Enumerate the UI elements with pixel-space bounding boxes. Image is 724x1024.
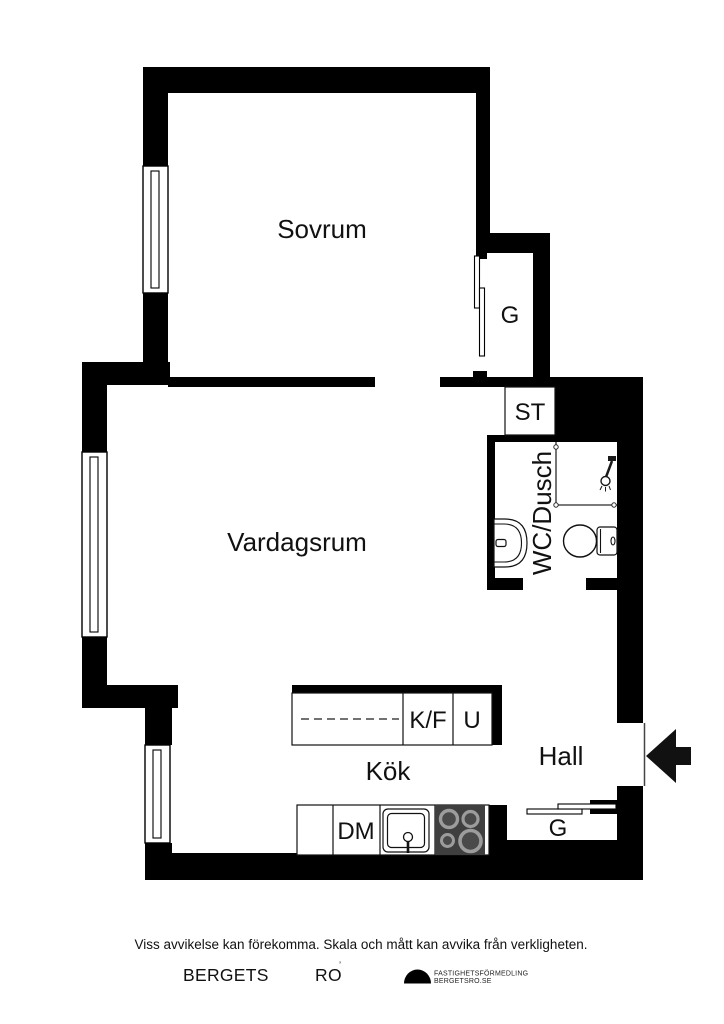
floor-plan-page: Sovrum Vardagsrum Kök Hall WC/Dusch G ST… bbox=[0, 0, 724, 1024]
kitchen-sink-basin bbox=[388, 814, 425, 848]
wall-sovrum-right bbox=[476, 67, 490, 233]
wall-wc-bottom-left bbox=[487, 578, 523, 590]
wall-sovrum-left-upper bbox=[143, 93, 168, 166]
agency-line-2: BERGETSRO.SE bbox=[434, 978, 492, 985]
brand-word-ro: RO bbox=[315, 965, 342, 985]
sliding-door-hall-closet-panel-2 bbox=[558, 804, 616, 809]
burner-bottom-right bbox=[460, 831, 481, 852]
label-diskmaskin: DM bbox=[337, 818, 374, 845]
wall-lowerleft-above-window bbox=[145, 708, 172, 745]
shower-bracket bbox=[608, 456, 616, 461]
toilet-bowl bbox=[564, 525, 597, 557]
wall-stub-right-of-stove bbox=[489, 805, 507, 855]
label-hall: Hall bbox=[539, 741, 584, 771]
wall-closet-right bbox=[533, 233, 550, 385]
agency-dome-logo-icon bbox=[404, 970, 431, 984]
kitchen-tap-icon bbox=[404, 833, 413, 842]
wall-step-bottom-left bbox=[82, 685, 178, 708]
wall-kitchen-counter-top bbox=[292, 685, 502, 693]
window-vardagsrum-glass bbox=[90, 457, 98, 632]
window-sovrum-glass bbox=[151, 171, 159, 288]
label-garderob-hall: G bbox=[549, 815, 568, 842]
label-sovrum: Sovrum bbox=[277, 214, 367, 244]
wall-sovrum-left-lower bbox=[143, 293, 168, 370]
shower-rail-dot-1 bbox=[554, 445, 558, 449]
sliding-door-closet-panel-1 bbox=[475, 256, 480, 308]
burner-top-left bbox=[441, 811, 458, 828]
shower-head-icon bbox=[600, 456, 616, 492]
sliding-door-closet-panel-2 bbox=[480, 288, 485, 356]
label-garderob-sovrum: G bbox=[501, 302, 520, 329]
brand-mark: ’ bbox=[339, 960, 341, 970]
shower-rail-dot-3 bbox=[612, 503, 616, 507]
wall-right-below-entry bbox=[617, 786, 643, 880]
room-labels: Sovrum Vardagsrum Kök Hall WC/Dusch G ST… bbox=[227, 214, 583, 845]
wall-bottom-left bbox=[145, 853, 502, 880]
footer: Viss avvikelse kan förekomma. Skala och … bbox=[135, 937, 588, 985]
wall-divider-west bbox=[82, 362, 170, 385]
toilet-knob bbox=[611, 537, 615, 545]
wall-wc-top bbox=[487, 435, 643, 442]
wall-wc-left bbox=[487, 442, 495, 590]
disclaimer-text: Viss avvikelse kan förekomma. Skala och … bbox=[135, 937, 588, 952]
label-ugn: U bbox=[463, 707, 480, 734]
shower-head bbox=[601, 477, 610, 486]
shower-spray bbox=[600, 486, 611, 492]
wall-divider-a bbox=[168, 377, 375, 387]
label-kyl-frys: K/F bbox=[409, 707, 446, 734]
burner-top-right bbox=[463, 812, 478, 827]
burner-bottom-left bbox=[442, 835, 454, 847]
sliding-door-hall-closet-panel-1 bbox=[527, 809, 582, 814]
label-kok: Kök bbox=[366, 756, 412, 786]
label-vardagsrum: Vardagsrum bbox=[227, 527, 367, 557]
wall-block-right-of-st bbox=[550, 377, 643, 442]
bathroom-tap-icon bbox=[496, 540, 506, 547]
label-wc-dusch: WC/Dusch bbox=[527, 451, 557, 575]
wall-sovrum-top bbox=[143, 67, 490, 93]
floor-plan-svg: Sovrum Vardagsrum Kök Hall WC/Dusch G ST… bbox=[0, 0, 724, 1024]
window-kok-glass bbox=[153, 750, 161, 838]
entry-arrow-icon bbox=[646, 729, 691, 783]
label-st: ST bbox=[515, 399, 546, 426]
shower-handle bbox=[606, 461, 612, 477]
wall-wc-bottom-right bbox=[586, 578, 643, 590]
brand-word-bergets: BERGETS bbox=[183, 965, 269, 985]
wall-kitchen-counter-end bbox=[492, 685, 502, 745]
wall-closet-door-stub-bottom bbox=[473, 371, 487, 378]
wall-divider-b bbox=[440, 377, 550, 387]
wall-vardagsrum-left-upper bbox=[82, 385, 107, 452]
agency-line-1: FASTIGHETSFÖRMEDLING bbox=[434, 970, 528, 978]
